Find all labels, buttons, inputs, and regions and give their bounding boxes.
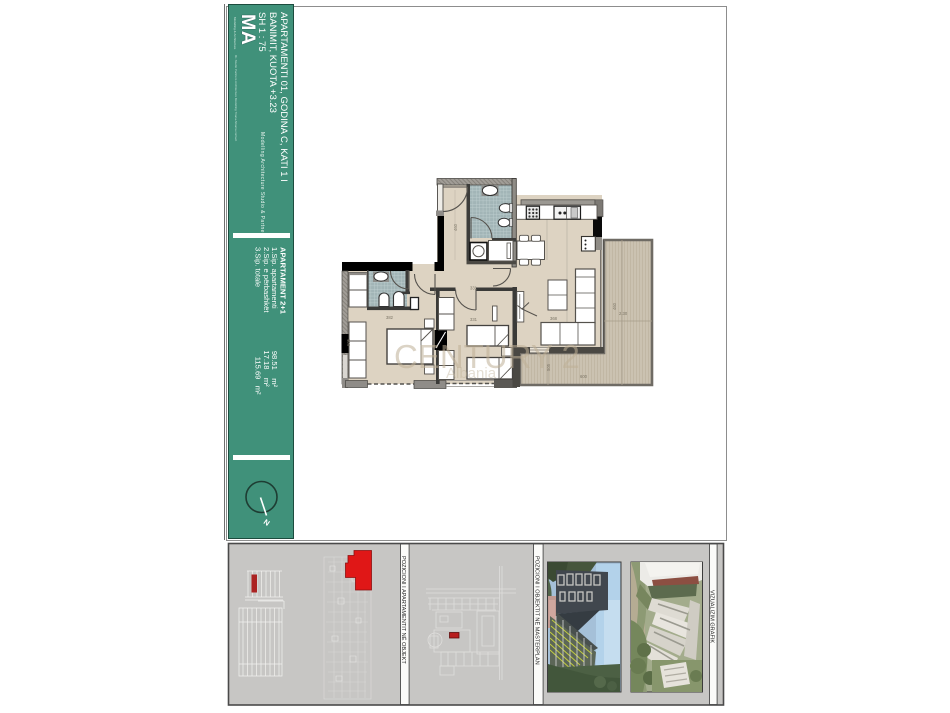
svg-text:600: 600 bbox=[580, 374, 588, 379]
svg-text:N: N bbox=[262, 517, 272, 527]
svg-text:505: 505 bbox=[346, 338, 351, 346]
svg-text:Albania: Albania bbox=[446, 365, 497, 382]
svg-text:460: 460 bbox=[453, 223, 458, 231]
svg-text:368: 368 bbox=[550, 316, 558, 321]
svg-text:331: 331 bbox=[470, 286, 478, 291]
svg-text:505: 505 bbox=[546, 363, 551, 371]
svg-text:331: 331 bbox=[470, 317, 478, 322]
svg-text:2.30: 2.30 bbox=[619, 311, 628, 316]
svg-text:460: 460 bbox=[612, 302, 617, 310]
svg-text:382: 382 bbox=[386, 315, 394, 320]
